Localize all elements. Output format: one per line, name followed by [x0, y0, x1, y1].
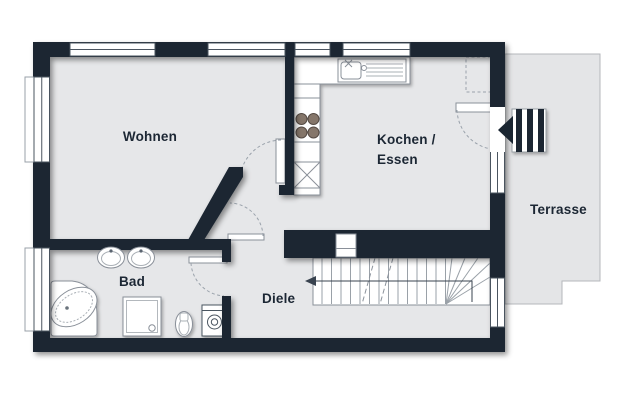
shower-icon — [123, 297, 161, 336]
label-bad: Bad — [119, 274, 145, 289]
kitchen-sink-icon — [338, 59, 406, 82]
window-right-2 — [491, 278, 505, 327]
tall-cabinet-icon — [294, 162, 320, 188]
terrace-floor — [505, 54, 600, 304]
label-kochen-line2: Essen — [377, 152, 418, 167]
label-kochen-line1: Kochen / — [377, 132, 436, 147]
diele-door-leaf — [228, 234, 264, 240]
wall-kitchen-foot — [279, 185, 294, 195]
terrace-area — [505, 54, 600, 304]
label-terrasse: Terrasse — [530, 202, 587, 217]
window-left-2 — [25, 248, 50, 331]
window-top-1 — [70, 43, 155, 56]
bad-door-leaf — [189, 257, 227, 263]
wall-stairs — [284, 230, 490, 258]
wall-bad-east-upper — [222, 250, 231, 262]
stove-icon — [294, 98, 320, 142]
label-wohnen: Wohnen — [123, 129, 177, 144]
staircase — [305, 258, 490, 305]
floor-plan: Wohnen Kochen / Essen Terrasse Bad Diele — [0, 0, 640, 402]
wall-bottom — [33, 338, 505, 352]
label-diele: Diele — [262, 291, 296, 306]
toilet-icon — [176, 312, 193, 337]
wall-bad-east-lower — [222, 296, 231, 338]
window-top-2 — [208, 43, 285, 56]
wohnen-door-leaf — [276, 139, 285, 183]
entrance-steps-icon — [512, 109, 546, 152]
window-top-4 — [343, 43, 410, 56]
window-left-1 — [25, 77, 50, 162]
stair-wall-niche — [336, 234, 356, 257]
wall-kitchen — [285, 43, 294, 195]
window-right-1 — [491, 150, 505, 193]
window-top-3 — [295, 43, 330, 56]
